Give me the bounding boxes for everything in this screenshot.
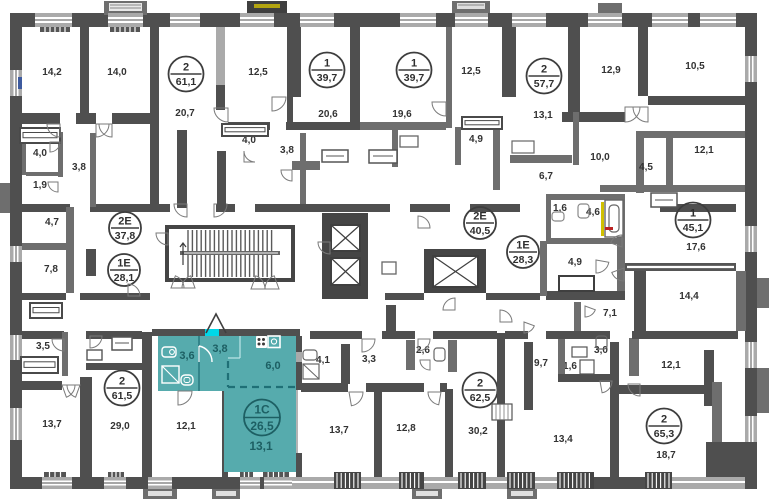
svg-text:28,3: 28,3 <box>513 254 534 266</box>
svg-text:12,1: 12,1 <box>176 421 196 432</box>
svg-text:13,1: 13,1 <box>249 439 273 453</box>
svg-text:30,2: 30,2 <box>468 426 488 437</box>
svg-text:3,8: 3,8 <box>72 162 86 173</box>
svg-text:19,6: 19,6 <box>392 109 412 120</box>
svg-text:13,7: 13,7 <box>42 419 62 430</box>
svg-text:1Е: 1Е <box>516 240 529 252</box>
svg-text:26,5: 26,5 <box>250 419 274 433</box>
svg-text:45,1: 45,1 <box>683 222 704 234</box>
svg-text:18,7: 18,7 <box>656 450 676 461</box>
svg-text:1,9: 1,9 <box>33 180 47 191</box>
svg-text:3,8: 3,8 <box>280 145 294 156</box>
svg-text:1: 1 <box>324 58 330 70</box>
svg-text:4,5: 4,5 <box>639 162 653 173</box>
svg-text:1: 1 <box>690 208 696 220</box>
svg-text:4,0: 4,0 <box>33 148 47 159</box>
svg-text:3,5: 3,5 <box>36 341 50 352</box>
svg-text:12,5: 12,5 <box>248 67 268 78</box>
svg-text:40,5: 40,5 <box>470 225 491 237</box>
svg-text:13,1: 13,1 <box>533 110 553 121</box>
svg-text:39,7: 39,7 <box>317 72 338 84</box>
svg-text:12,1: 12,1 <box>661 360 681 371</box>
svg-text:3,3: 3,3 <box>362 354 376 365</box>
svg-text:10,5: 10,5 <box>685 61 705 72</box>
svg-text:28,1: 28,1 <box>114 272 135 284</box>
svg-text:3,6: 3,6 <box>179 350 194 362</box>
svg-text:61,5: 61,5 <box>112 390 133 402</box>
svg-text:17,6: 17,6 <box>686 242 706 253</box>
svg-text:1: 1 <box>411 58 417 70</box>
svg-text:7,1: 7,1 <box>603 308 617 319</box>
svg-text:2: 2 <box>541 64 547 76</box>
svg-text:12,9: 12,9 <box>601 65 621 76</box>
svg-text:13,7: 13,7 <box>329 425 349 436</box>
svg-text:6,7: 6,7 <box>539 171 553 182</box>
svg-text:2: 2 <box>661 414 667 426</box>
svg-text:13,4: 13,4 <box>553 434 573 445</box>
svg-text:12,5: 12,5 <box>461 66 481 77</box>
svg-text:62,5: 62,5 <box>470 392 491 404</box>
svg-text:65,3: 65,3 <box>654 428 675 440</box>
svg-text:2: 2 <box>119 376 125 388</box>
svg-text:1,6: 1,6 <box>563 361 577 372</box>
svg-text:57,7: 57,7 <box>534 78 555 90</box>
svg-text:3,8: 3,8 <box>212 343 227 355</box>
svg-text:4,7: 4,7 <box>45 217 59 228</box>
svg-text:12,1: 12,1 <box>694 145 714 156</box>
svg-text:14,0: 14,0 <box>107 67 127 78</box>
svg-text:61,1: 61,1 <box>176 76 197 88</box>
svg-text:14,4: 14,4 <box>679 291 699 302</box>
svg-text:2: 2 <box>183 62 189 74</box>
svg-text:2Е: 2Е <box>473 211 486 223</box>
svg-text:4,9: 4,9 <box>469 134 483 145</box>
svg-text:2Е: 2Е <box>118 216 131 228</box>
svg-text:2: 2 <box>477 378 483 390</box>
svg-text:20,7: 20,7 <box>175 108 195 119</box>
svg-text:1Е: 1Е <box>117 258 130 270</box>
svg-text:9,7: 9,7 <box>534 358 548 369</box>
svg-text:29,0: 29,0 <box>110 421 130 432</box>
svg-text:1С: 1С <box>254 403 270 417</box>
svg-text:14,2: 14,2 <box>42 67 62 78</box>
svg-text:10,0: 10,0 <box>590 152 610 163</box>
svg-text:4,9: 4,9 <box>568 257 582 268</box>
svg-text:20,6: 20,6 <box>318 109 338 120</box>
svg-text:39,7: 39,7 <box>404 72 425 84</box>
svg-text:6,0: 6,0 <box>265 360 280 372</box>
svg-text:37,8: 37,8 <box>115 230 136 242</box>
svg-text:7,8: 7,8 <box>44 264 58 275</box>
svg-text:12,8: 12,8 <box>396 423 416 434</box>
